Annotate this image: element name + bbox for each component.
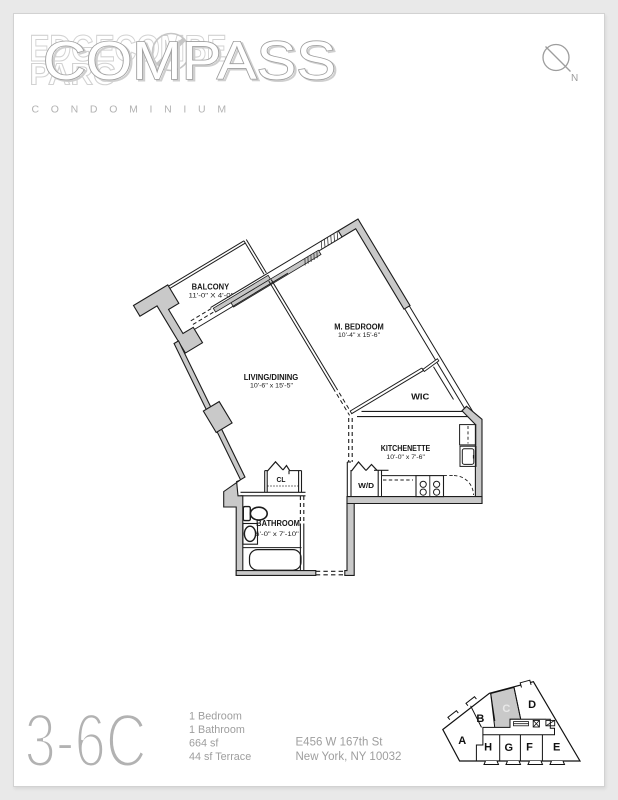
svg-text:CONDOMINIUM: CONDOMINIUM — [32, 104, 238, 116]
svg-text:3-6C: 3-6C — [25, 699, 147, 783]
svg-text:M. BEDROOM: M. BEDROOM — [334, 322, 384, 332]
svg-text:6'-0" x 7'-10": 6'-0" x 7'-10" — [255, 531, 299, 538]
svg-text:F: F — [526, 742, 533, 754]
svg-text:New York, NY 10032: New York, NY 10032 — [296, 751, 402, 763]
svg-text:CL: CL — [277, 475, 287, 484]
svg-text:H: H — [484, 742, 492, 754]
svg-text:N: N — [571, 73, 578, 84]
svg-text:44 sf Terrace: 44 sf Terrace — [189, 751, 251, 763]
svg-text:G: G — [505, 742, 514, 754]
svg-text:1 Bedroom: 1 Bedroom — [189, 711, 242, 723]
svg-text:E456 W 167th St: E456 W 167th St — [296, 737, 384, 749]
svg-text:10'-0" x 7'-6": 10'-0" x 7'-6" — [386, 454, 425, 461]
svg-text:1 Bathroom: 1 Bathroom — [189, 724, 245, 736]
svg-text:A: A — [458, 735, 466, 747]
svg-text:W/D: W/D — [358, 481, 375, 490]
svg-text:664 sf: 664 sf — [189, 738, 219, 750]
svg-text:COMPASS: COMPASS — [43, 32, 336, 91]
svg-text:KITCHENETTE: KITCHENETTE — [381, 443, 431, 453]
svg-text:BALCONY: BALCONY — [192, 282, 230, 292]
svg-text:10'-4" x 15'-6": 10'-4" x 15'-6" — [338, 332, 381, 339]
svg-text:C: C — [502, 703, 510, 715]
svg-text:LIVING/DINING: LIVING/DINING — [244, 372, 299, 382]
svg-text:D: D — [528, 699, 536, 711]
svg-text:11'-0" X 4'-0": 11'-0" X 4'-0" — [189, 293, 235, 300]
svg-text:10'-6" x 15'-5": 10'-6" x 15'-5" — [250, 382, 294, 389]
svg-text:B: B — [476, 713, 484, 725]
svg-text:WIC: WIC — [411, 392, 429, 401]
svg-text:E: E — [553, 742, 560, 754]
